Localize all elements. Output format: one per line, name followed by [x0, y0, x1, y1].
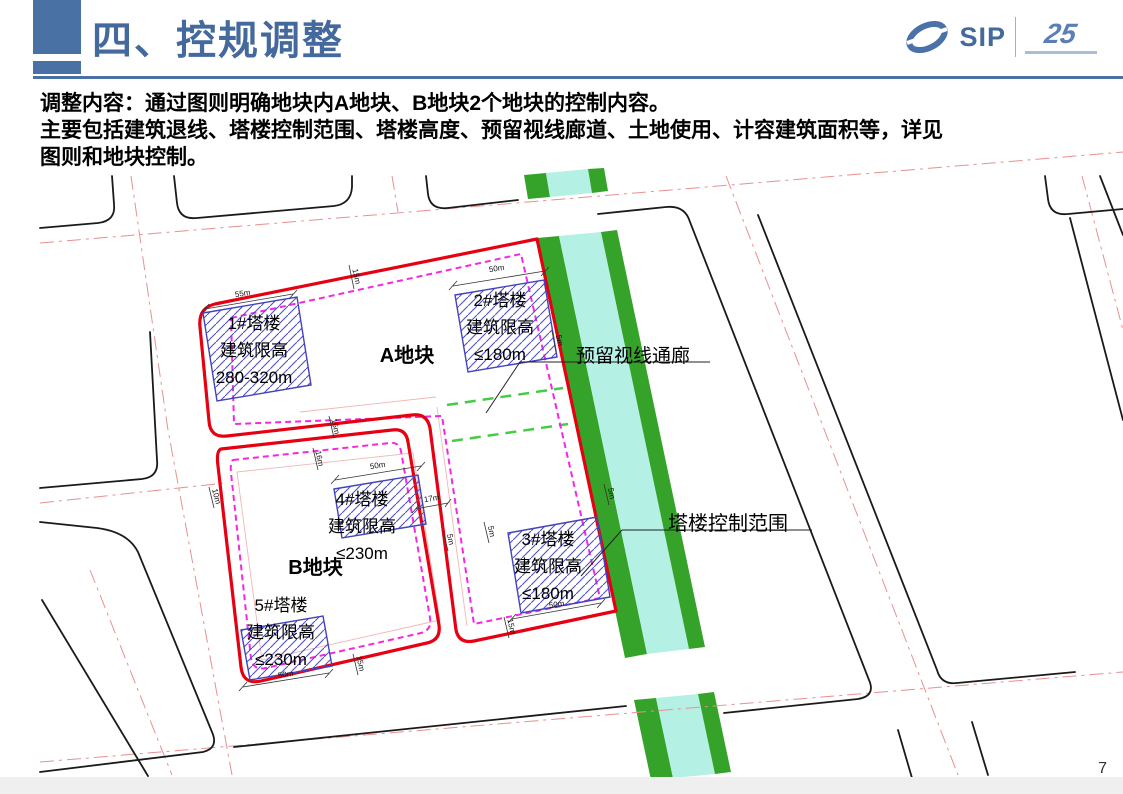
- dim-15m-top: 15m: [350, 268, 362, 285]
- dim-17m: 17m: [423, 493, 440, 504]
- tower-5-label: 5#塔楼 建筑限高 ≤230m: [226, 592, 336, 673]
- sight-corridor-label: 预留视线通廊: [576, 341, 690, 368]
- dim-50m-t2: 50m: [488, 263, 505, 274]
- centerline-left-road: [131, 176, 232, 775]
- canal-water: [546, 169, 592, 197]
- corridor-line-lower: [452, 424, 568, 441]
- parcel-line-band: [300, 397, 436, 412]
- curb-east-road-east: [758, 215, 1075, 683]
- centerline-top-road: [40, 152, 1123, 243]
- curb-nw-corner: [40, 176, 114, 228]
- tower-2-label: 2#塔楼 建筑限高 ≤180m: [444, 287, 556, 368]
- footer-bar: [0, 777, 1123, 794]
- tower-1-label: 1#塔楼 建筑限高 280-320m: [195, 310, 313, 391]
- dim-15m-b: 15m: [354, 655, 366, 672]
- dim-16m-b: 16m: [313, 450, 325, 467]
- corridor-line-upper: [447, 388, 563, 405]
- tower-control-label: 塔楼控制范围: [668, 507, 788, 536]
- curb-southwest-west: [42, 600, 148, 776]
- slide: 四、控规调整 SIP 25 调整内容：通过图则明确地块内A地块、B地块2个地块的…: [0, 0, 1123, 794]
- curb-southeast-b: [972, 722, 988, 775]
- tower-3-label: 3#塔楼 建筑限高 ≤180m: [492, 526, 604, 607]
- dim-50m-t4: 50m: [369, 460, 386, 471]
- sight-corridor-lines: [447, 388, 568, 441]
- centerline-southwest-road: [90, 570, 172, 775]
- centerline-east-road: [726, 176, 958, 775]
- centerline-farright-road: [1082, 176, 1123, 330]
- curb-ne-block: [174, 176, 352, 218]
- curb-topright-east: [1100, 176, 1123, 235]
- canal-band: [524, 168, 731, 780]
- dim-16m-a: 16m: [329, 418, 341, 435]
- curb-southwest-block: [40, 522, 214, 772]
- curb-left-road-west: [40, 332, 157, 488]
- canal-bank-green: [524, 173, 550, 199]
- centerline-bottom-road: [40, 672, 1123, 762]
- sight-corridor-leader: [486, 362, 520, 413]
- centerline-north-stub: [392, 176, 398, 212]
- page-number: 7: [1098, 760, 1107, 778]
- curb-north-stub-east: [426, 176, 518, 208]
- curb-southeast-a: [898, 730, 912, 778]
- curb-right-edge: [1070, 218, 1123, 420]
- tower-4-label: 4#塔楼 建筑限高 ≤230m: [306, 486, 418, 567]
- curb-bottom-road-north: [234, 706, 626, 747]
- site-plan: 55m 15m 50m 5m 16m 16m 10m 50m 17m 5m 5m…: [0, 0, 1123, 794]
